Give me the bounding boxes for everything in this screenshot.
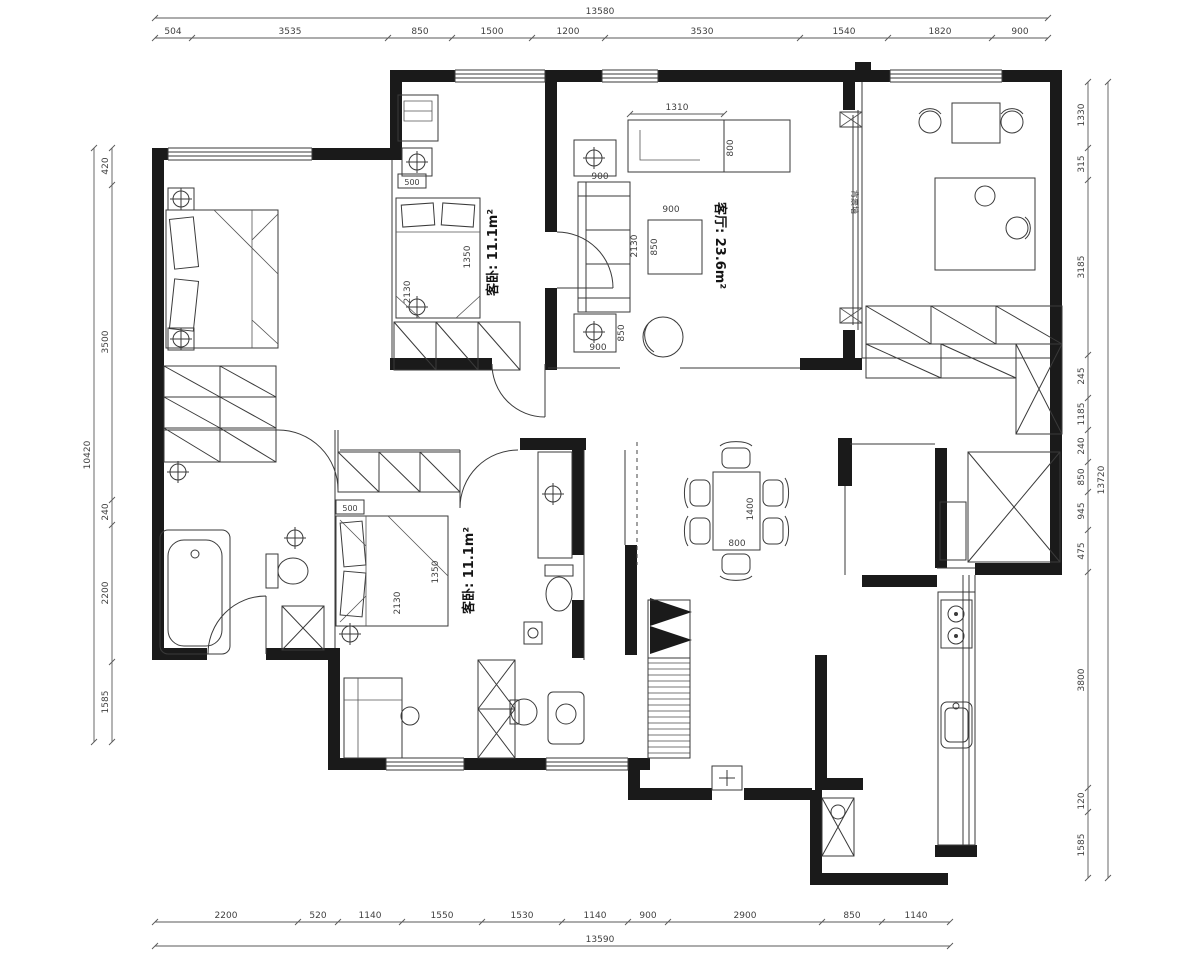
svg-text:1330: 1330 — [1077, 103, 1087, 126]
master-bedroom — [164, 188, 278, 483]
partition-lines — [164, 82, 1050, 660]
dining-chair — [720, 554, 752, 580]
floor-plan-page: 13580 504 3535 850 1500 1200 3530 1540 1… — [0, 0, 1200, 960]
room-label-living: 客厅: 23.6m² — [712, 202, 728, 289]
toilet-mid — [545, 565, 573, 611]
window-master — [168, 148, 312, 160]
dim-right-total: 13720 — [1097, 465, 1107, 494]
dimension-chain-top: 13580 504 3535 850 1500 1200 3530 1540 1… — [152, 7, 1051, 41]
svg-text:1500: 1500 — [481, 27, 504, 37]
armchair — [643, 317, 683, 357]
svg-text:900: 900 — [1011, 27, 1028, 37]
ceiling-lamp-icon — [284, 527, 306, 549]
svg-text:1530: 1530 — [511, 911, 534, 921]
svg-text:315: 315 — [1077, 155, 1087, 172]
desk — [398, 95, 438, 141]
bathroom-mid — [524, 452, 573, 644]
dimension-chain-right: 1330 315 3185 245 1185 240 850 945 475 3… — [1077, 79, 1111, 881]
ceiling-lamp-icon — [167, 461, 189, 483]
svg-text:1140: 1140 — [905, 911, 928, 921]
floor-drain — [524, 622, 542, 644]
svg-text:945: 945 — [1077, 502, 1087, 519]
svg-text:475: 475 — [1077, 542, 1087, 559]
dimension-chain-left: 10420 420 3500 240 2200 1585 — [83, 145, 115, 745]
svg-text:3185: 3185 — [1077, 256, 1087, 279]
coffee-table: 900 850 — [648, 205, 702, 274]
entry-door-swing — [650, 598, 692, 654]
room-label-bedroom-top: 客卧: 11.1m² — [485, 209, 501, 296]
svg-text:900: 900 — [589, 343, 606, 353]
chair — [919, 109, 941, 133]
svg-text:900: 900 — [591, 172, 608, 182]
svg-text:240: 240 — [1077, 437, 1087, 454]
kitchen-sink — [941, 702, 972, 748]
washing-machine — [822, 798, 854, 856]
wardrobe-study — [866, 306, 1062, 434]
window-bottom-2 — [546, 758, 628, 770]
door-living — [557, 232, 613, 288]
window-bottom-1 — [386, 758, 464, 770]
svg-text:2130: 2130 — [630, 234, 640, 257]
dining-chair — [684, 478, 710, 508]
floor-plan-svg: 13580 504 3535 850 1500 1200 3530 1540 1… — [0, 0, 1200, 960]
tv-cabinet: 1310 800 — [627, 103, 790, 172]
piano — [344, 678, 419, 758]
svg-text:1585: 1585 — [1077, 834, 1087, 857]
windows — [168, 70, 1002, 845]
master-wardrobe — [164, 366, 276, 462]
door-bath-left — [208, 596, 266, 654]
svg-text:2900: 2900 — [734, 911, 757, 921]
room-label-bedroom-bottom: 客卧: 11.1m² — [461, 527, 477, 614]
svg-text:1140: 1140 — [584, 911, 607, 921]
svg-text:850: 850 — [1077, 468, 1087, 485]
window-top-2 — [602, 70, 658, 82]
study-table — [935, 178, 1035, 270]
svg-text:2200: 2200 — [215, 911, 238, 921]
svg-text:3800: 3800 — [1077, 668, 1087, 691]
svg-text:1200: 1200 — [557, 27, 580, 37]
svg-text:240: 240 — [101, 503, 111, 520]
svg-text:3500: 3500 — [101, 330, 111, 353]
balcony — [822, 798, 854, 856]
svg-text:1540: 1540 — [833, 27, 856, 37]
chair — [1001, 109, 1023, 133]
small-table — [952, 103, 1000, 143]
door-bedroom-bottom — [460, 450, 518, 508]
svg-text:520: 520 — [309, 911, 326, 921]
svg-text:800: 800 — [728, 539, 745, 549]
door-bedroom-top — [492, 364, 545, 417]
window-top-3 — [890, 70, 1002, 82]
shoe-cabinet — [648, 658, 690, 758]
svg-text:800: 800 — [726, 139, 736, 156]
tv-wall-label: 背景墙 — [850, 190, 860, 214]
dining-table: 1400 800 — [713, 472, 760, 550]
svg-text:1400: 1400 — [746, 497, 756, 520]
bedroom-top: 500 1350 2130 客卧: 11.1m² — [394, 95, 520, 370]
chair — [1006, 217, 1030, 239]
sink-cabinet — [282, 606, 324, 650]
bottom-rooms — [344, 660, 584, 758]
study-room — [866, 103, 1062, 434]
svg-text:2130: 2130 — [403, 280, 413, 303]
dining-chair — [684, 516, 710, 546]
dim-bottom-total: 13590 — [586, 935, 615, 945]
dining-chair — [763, 478, 789, 508]
dim-box-500-b: 500 — [336, 500, 364, 514]
svg-text:1820: 1820 — [929, 27, 952, 37]
ceiling-lamp-icon — [583, 147, 605, 169]
bedroom-bottom: 500 1350 2130 客卧: 11.1m² — [336, 452, 477, 645]
svg-text:500: 500 — [404, 178, 419, 187]
closet-room — [940, 452, 1060, 562]
bathroom-left — [160, 527, 324, 654]
window-top-1 — [455, 70, 545, 82]
toilet-left — [266, 554, 308, 588]
dining-chair — [763, 516, 789, 546]
sink-icon — [542, 483, 564, 505]
storage-column — [478, 660, 515, 758]
svg-text:420: 420 — [101, 157, 111, 174]
svg-text:1350: 1350 — [431, 560, 441, 583]
svg-text:850: 850 — [650, 238, 660, 255]
svg-text:900: 900 — [639, 911, 656, 921]
svg-text:2130: 2130 — [393, 591, 403, 614]
svg-text:1585: 1585 — [101, 691, 111, 714]
svg-text:1310: 1310 — [666, 103, 689, 113]
sofa — [578, 182, 630, 312]
svg-text:850: 850 — [843, 911, 860, 921]
entry-door-mat — [712, 766, 742, 790]
dining-chair — [720, 442, 752, 468]
tv-feature-wall: 背景墙 — [840, 110, 862, 330]
svg-text:1550: 1550 — [431, 911, 454, 921]
ceiling-lamp-icon — [170, 188, 192, 210]
svg-text:120: 120 — [1077, 792, 1087, 809]
svg-text:2200: 2200 — [101, 581, 111, 604]
dimension-chain-bottom: 2200 520 1140 1550 1530 1140 900 2900 85… — [152, 911, 953, 949]
living-room: 1310 800 900 2130 900 850 客厅: 23.6m² 850… — [574, 103, 862, 357]
svg-text:1350: 1350 — [463, 245, 473, 268]
door-master — [278, 430, 338, 490]
window-kitchen — [963, 575, 975, 845]
bathtub — [160, 530, 230, 654]
svg-text:900: 900 — [662, 205, 679, 215]
svg-text:850: 850 — [617, 324, 627, 341]
wardrobe-bedroom-bottom — [338, 452, 460, 492]
dining-area: 1400 800 — [637, 442, 789, 581]
dim-left-total: 10420 — [83, 440, 93, 469]
ceiling-lamp-icon — [170, 328, 192, 350]
ceiling-lamp-icon — [583, 321, 605, 343]
svg-text:850: 850 — [411, 27, 428, 37]
master-bed — [166, 210, 278, 348]
stool — [510, 699, 537, 725]
dim-top-total: 13580 — [586, 7, 615, 17]
ceiling-lamp-icon — [406, 151, 428, 173]
vanity — [538, 452, 572, 558]
svg-text:1185: 1185 — [1077, 403, 1087, 426]
svg-text:500: 500 — [342, 504, 357, 513]
svg-text:504: 504 — [164, 27, 181, 37]
svg-text:3530: 3530 — [691, 27, 714, 37]
svg-text:1140: 1140 — [359, 911, 382, 921]
washbasin — [548, 692, 584, 744]
svg-text:3535: 3535 — [279, 27, 302, 37]
svg-text:245: 245 — [1077, 367, 1087, 384]
stove — [941, 600, 972, 648]
